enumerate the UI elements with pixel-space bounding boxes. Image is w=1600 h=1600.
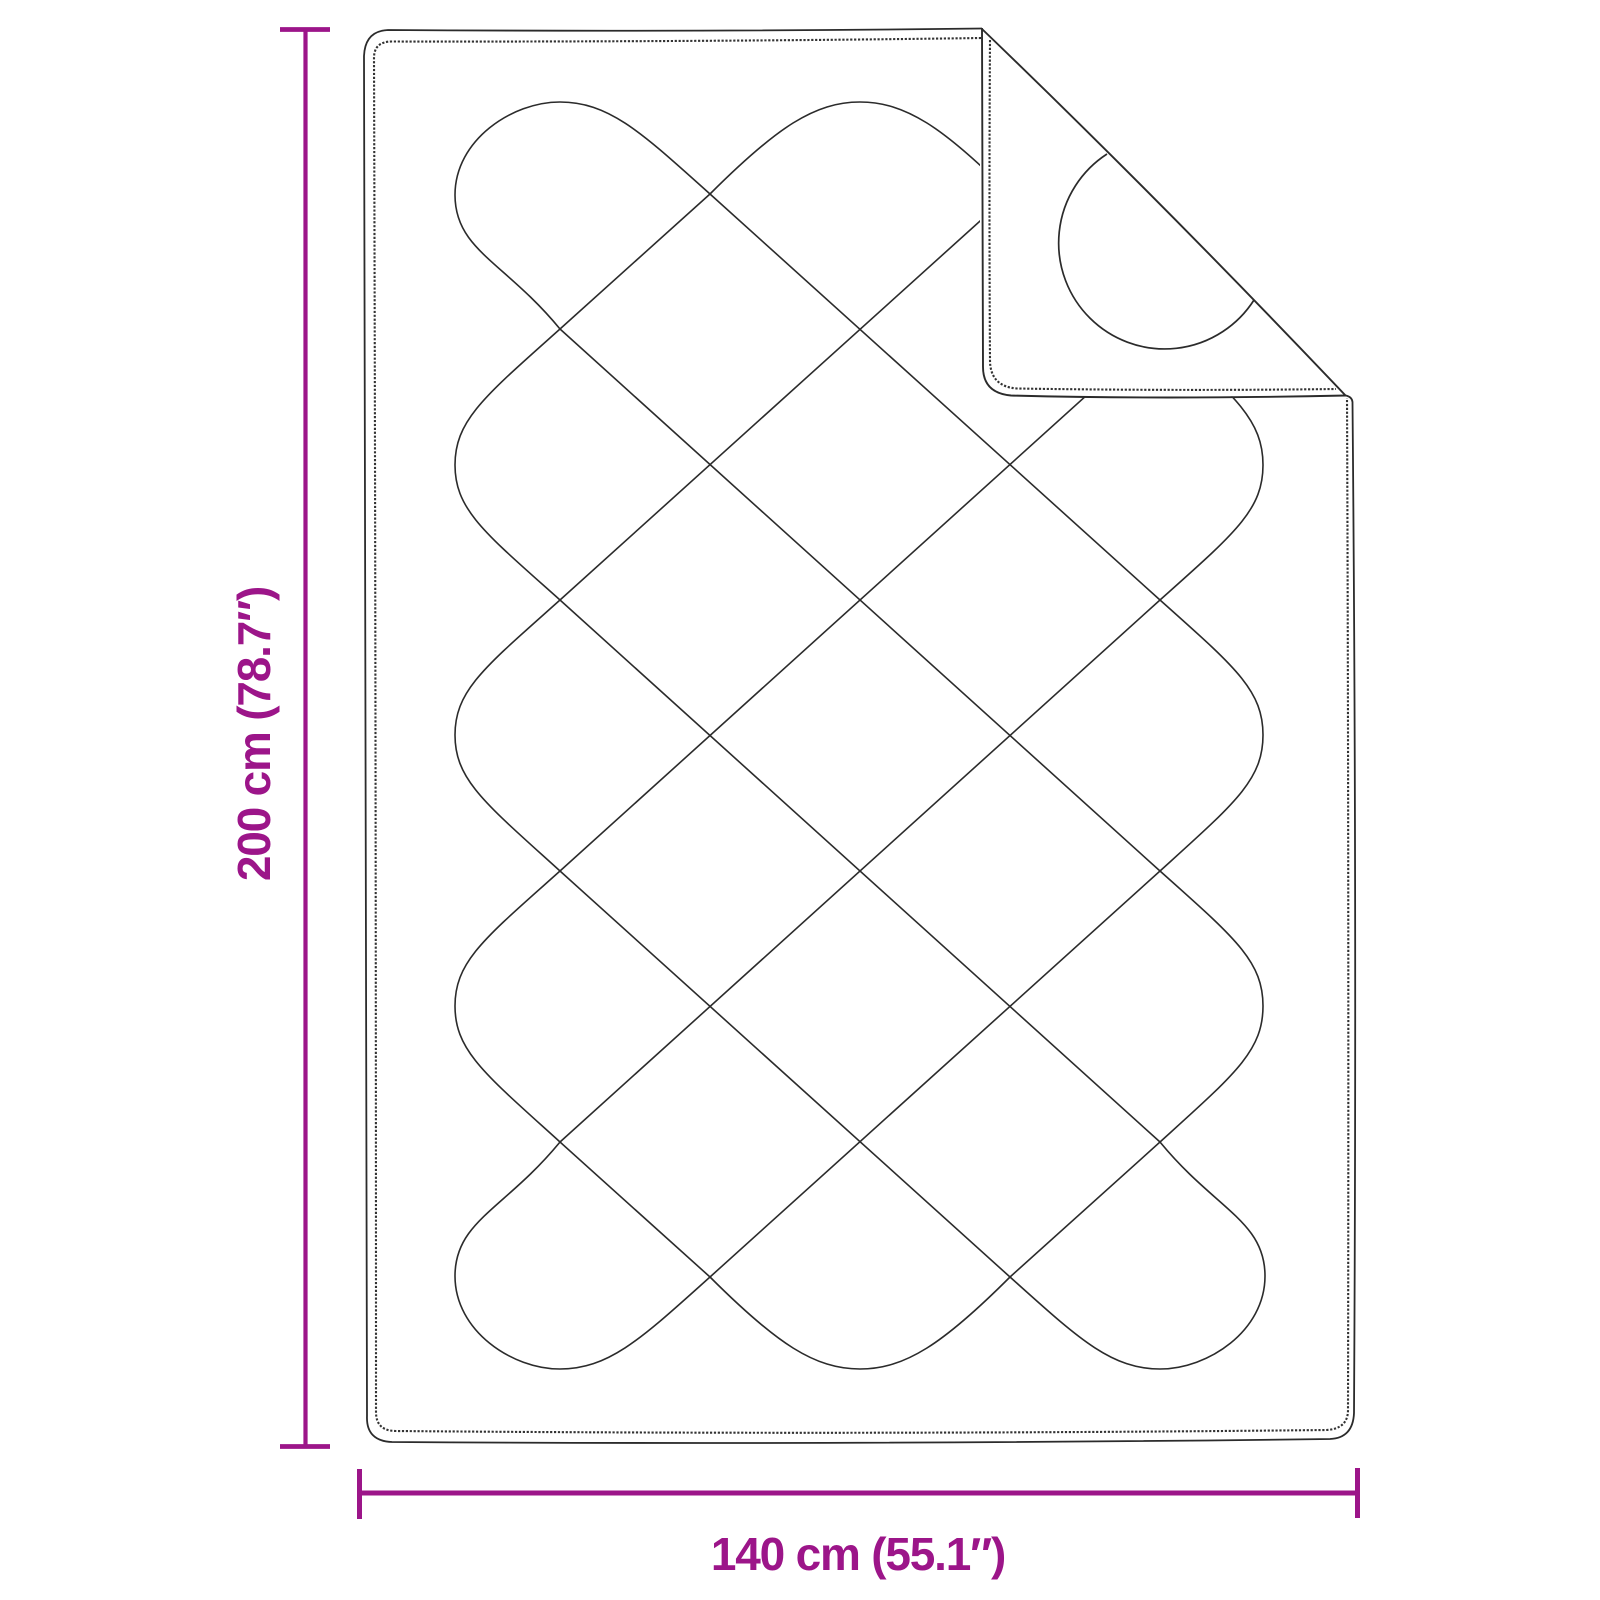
svg-text:140 cm (55.1″): 140 cm (55.1″) (711, 1528, 1005, 1580)
svg-text:200 cm (78.7″): 200 cm (78.7″) (228, 587, 280, 881)
